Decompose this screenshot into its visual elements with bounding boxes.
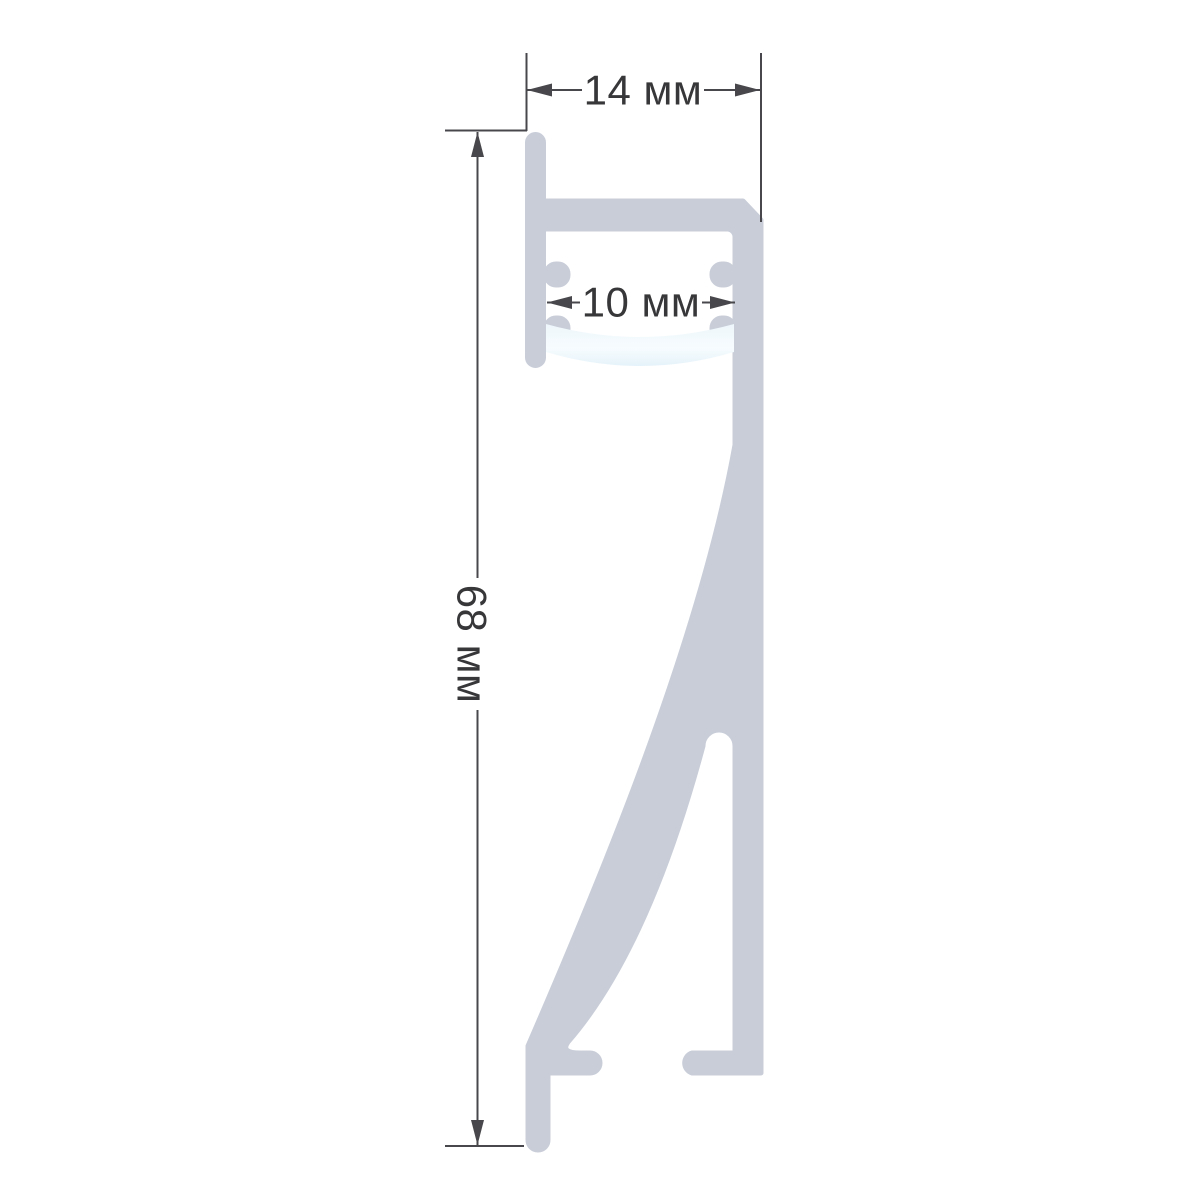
technical-drawing-page: 14 мм 10 мм 68 мм [0,0,1200,1200]
dimension-slot-label: 10 мм [582,279,701,326]
channel-ridge-left-upper [544,262,570,287]
canvas-background [0,0,1200,1200]
dimension-height-label-group: 68 мм [448,578,495,710]
dimension-width-label: 14 мм [584,67,703,114]
channel-ridge-right-upper [710,262,736,287]
led-profile-cross-section-drawing: 14 мм 10 мм 68 мм [0,0,1200,1200]
mount-flange [526,133,545,367]
dimension-slot-label-group: 10 мм [580,279,702,326]
dimension-width-label-group: 14 мм [582,67,704,114]
dimension-height-label: 68 мм [448,585,495,704]
